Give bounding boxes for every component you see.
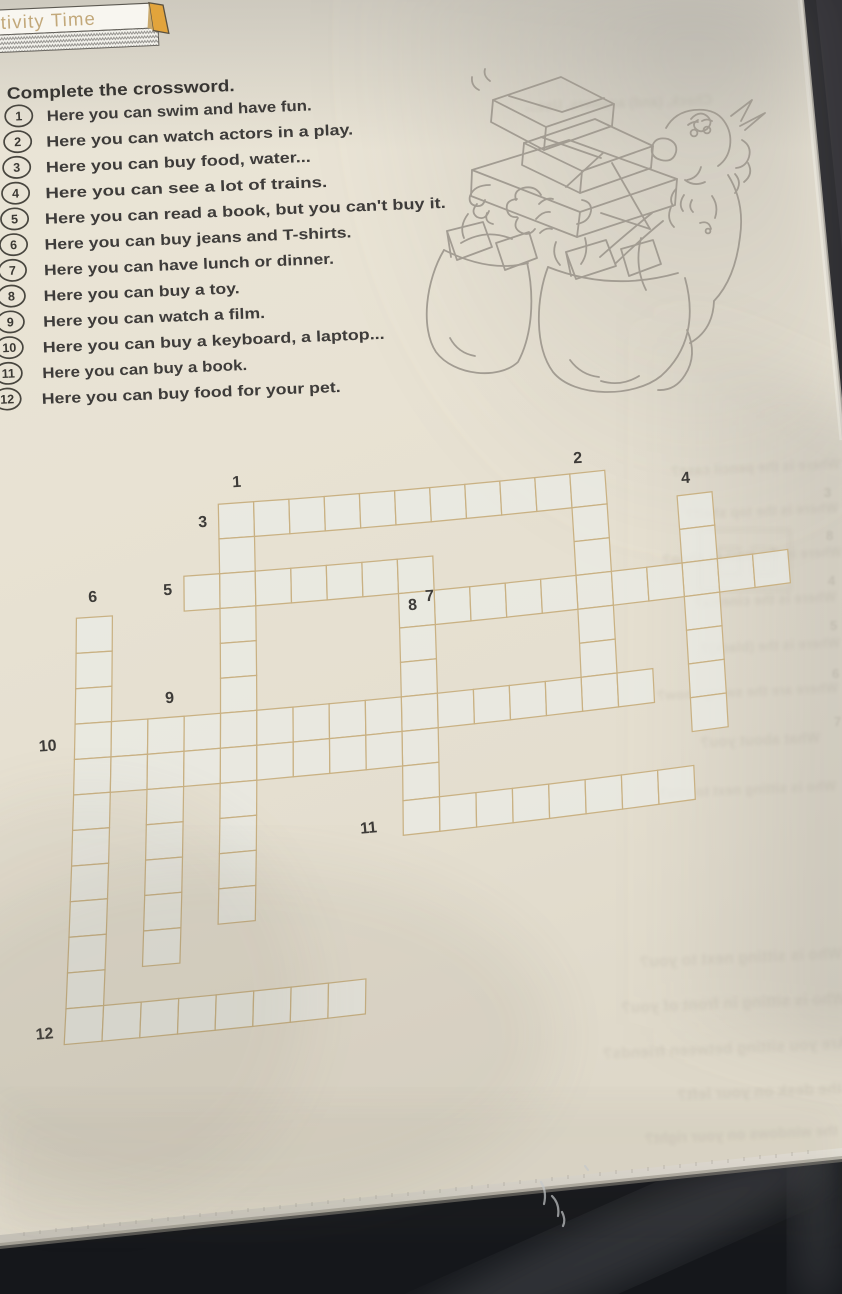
svg-text:9: 9 — [165, 690, 175, 708]
svg-text:7: 7 — [834, 714, 841, 729]
svg-text:1: 1 — [232, 474, 242, 491]
svg-text:4: 4 — [681, 470, 691, 488]
svg-text:11: 11 — [359, 819, 377, 837]
svg-text:5: 5 — [163, 582, 173, 599]
svg-text:6: 6 — [832, 666, 839, 681]
svg-text:5: 5 — [830, 618, 837, 633]
svg-text:2: 2 — [573, 450, 583, 467]
svg-text:1: 1 — [15, 109, 23, 123]
svg-text:4: 4 — [12, 186, 20, 200]
svg-text:9: 9 — [7, 315, 15, 329]
svg-text:6: 6 — [10, 238, 18, 252]
svg-text:4: 4 — [828, 573, 836, 588]
svg-text:2: 2 — [14, 135, 22, 149]
svg-text:3: 3 — [824, 485, 831, 500]
svg-text:7: 7 — [425, 588, 435, 606]
svg-text:10: 10 — [2, 341, 17, 356]
svg-text:tivity Time: tivity Time — [0, 8, 96, 33]
svg-text:10: 10 — [38, 737, 57, 755]
svg-text:8: 8 — [826, 528, 833, 543]
svg-text:8: 8 — [408, 597, 418, 615]
svg-text:8: 8 — [8, 289, 16, 303]
svg-text:3: 3 — [198, 514, 208, 531]
svg-text:12: 12 — [0, 392, 14, 407]
svg-text:6: 6 — [88, 589, 98, 606]
svg-text:5: 5 — [11, 212, 19, 226]
svg-text:3: 3 — [13, 161, 21, 175]
svg-text:11: 11 — [1, 366, 15, 381]
svg-text:7: 7 — [9, 264, 17, 278]
